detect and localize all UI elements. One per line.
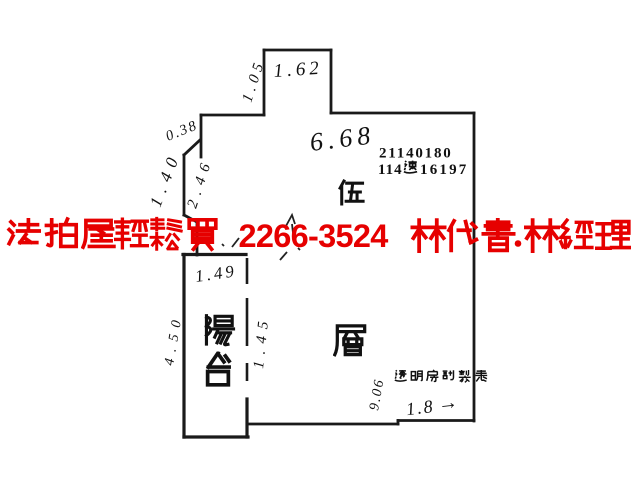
svg-text:16197: 16197: [420, 162, 469, 178]
svg-text:1.8: 1.8: [405, 396, 436, 419]
svg-text:1.49: 1.49: [194, 261, 238, 286]
svg-text:2.46: 2.46: [185, 156, 216, 211]
svg-text:6.68: 6.68: [308, 120, 377, 157]
svg-text:0.38: 0.38: [164, 117, 201, 144]
svg-text:1.45: 1.45: [251, 314, 273, 370]
svg-text:2266-3524: 2266-3524: [239, 218, 389, 254]
svg-text:21140180: 21140180: [379, 146, 453, 162]
svg-text:1.40: 1.40: [146, 149, 184, 210]
svg-text:→: →: [437, 391, 462, 416]
svg-text:114: 114: [378, 162, 403, 178]
svg-text:1.62: 1.62: [273, 58, 324, 82]
svg-text:9.06: 9.06: [367, 377, 387, 412]
